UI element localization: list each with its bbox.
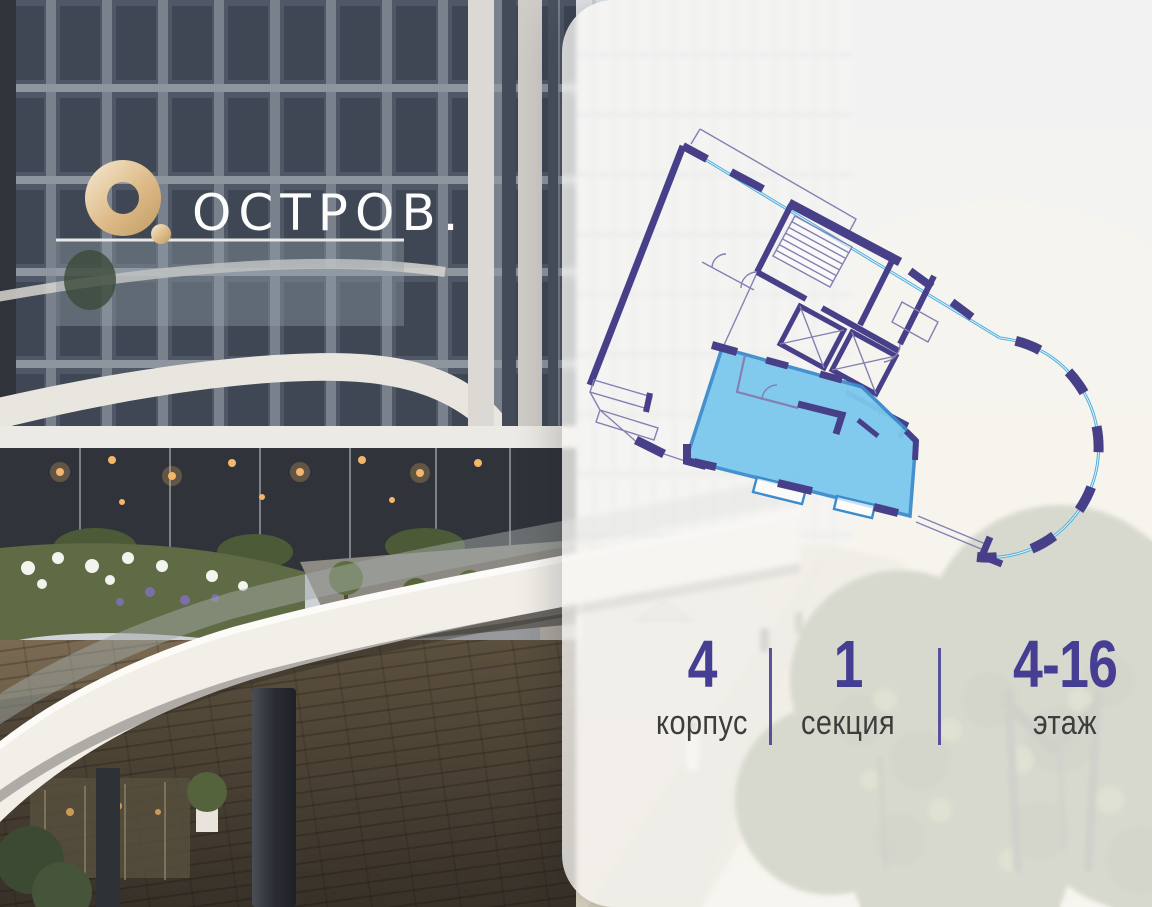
brand-logo: ОСТРОВ. [84, 158, 514, 250]
screenshot-root: ОСТРОВ. [0, 0, 1152, 907]
info-floors: 4-16 этаж [975, 640, 1152, 740]
info-row: 4 корпус 1 секция 4-16 этаж [562, 640, 1152, 760]
info-divider [938, 648, 941, 745]
section-number: 1 [833, 640, 862, 691]
info-building: 4 корпус [634, 640, 770, 740]
logo-ring-icon [84, 158, 194, 250]
floors-label: этаж [989, 706, 1142, 740]
info-section: 1 секция [780, 640, 916, 740]
info-divider [769, 648, 772, 745]
building-number: 4 [687, 640, 716, 691]
section-label: секция [790, 706, 906, 740]
logo-text: ОСТРОВ. [192, 184, 466, 242]
building-label: корпус [644, 706, 760, 740]
floors-range: 4-16 [1013, 640, 1117, 691]
